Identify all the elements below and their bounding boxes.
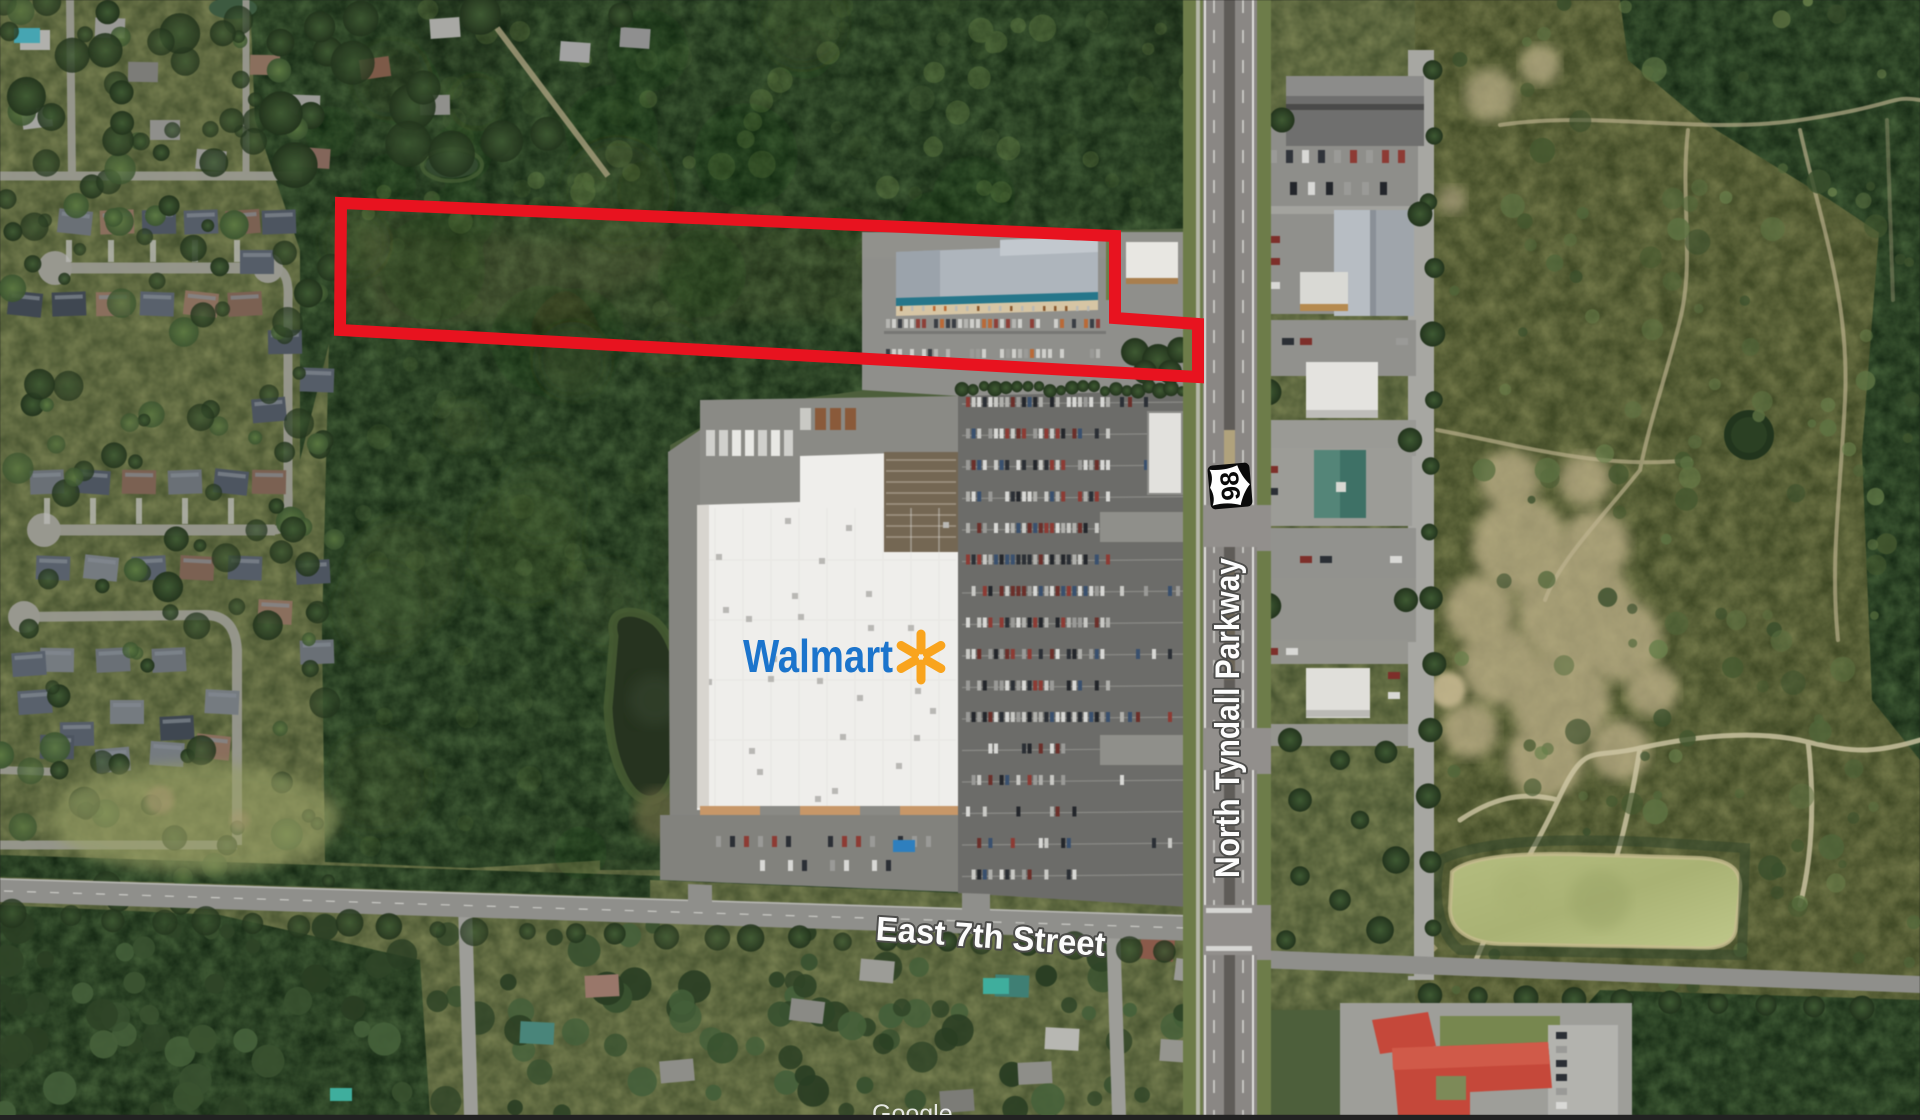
svg-text:98: 98 xyxy=(1214,470,1246,501)
svg-text:Walmart: Walmart xyxy=(743,630,893,682)
svg-text:North Tyndall Parkway: North Tyndall Parkway xyxy=(1209,558,1247,878)
svg-text:Google: Google xyxy=(872,1100,953,1115)
